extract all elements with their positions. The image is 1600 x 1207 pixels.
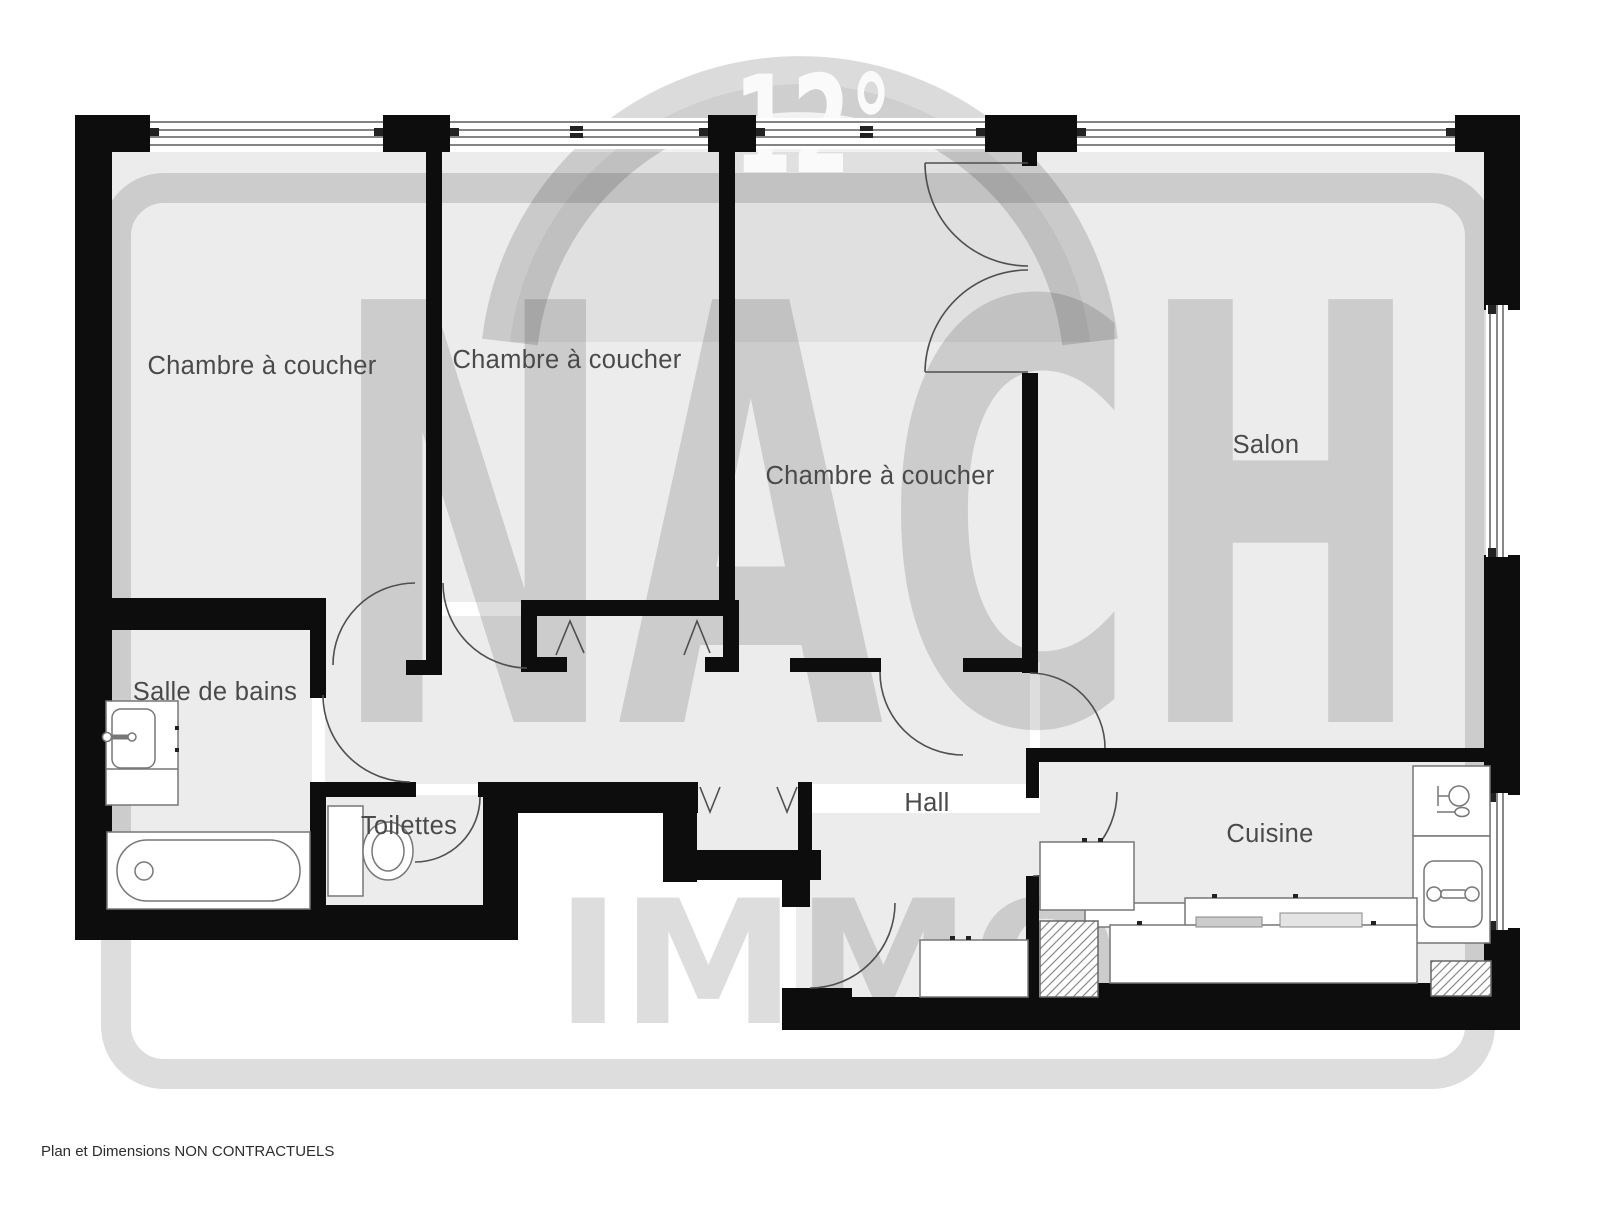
floor-plan: NACH IMMO 12° (0, 0, 1600, 1207)
floor-plan-page: NACH IMMO 12° (0, 0, 1600, 1207)
room-label-salon: Salon (1233, 431, 1300, 459)
window (450, 118, 708, 149)
room-label-bedroom-3: Chambre à coucher (765, 462, 994, 490)
window (1077, 118, 1455, 149)
washbasin-icon (103, 701, 180, 805)
room-label-hall: Hall (904, 789, 949, 817)
dishwasher-icon (1413, 766, 1490, 836)
ventilation-shaft (1431, 961, 1491, 996)
room-label-toilets: Toilettes (361, 812, 457, 840)
window (150, 118, 383, 149)
hall-cabinet (920, 936, 1028, 997)
room-label-bedroom-2: Chambre à coucher (452, 346, 681, 374)
wardrobe-cabinet (1040, 838, 1134, 910)
room-label-bedroom-1: Chambre à coucher (147, 352, 376, 380)
kitchen-sink-icon (1413, 836, 1490, 943)
ventilation-shaft (1040, 921, 1098, 997)
disclaimer-text: Plan et Dimensions NON CONTRACTUELS (41, 1143, 334, 1160)
bathtub-icon (107, 832, 310, 909)
room-label-bathroom: Salle de bains (133, 678, 297, 706)
window (756, 118, 985, 149)
kitchen-counter (1085, 894, 1417, 983)
room-label-kitchen: Cuisine (1226, 820, 1313, 848)
window (1486, 305, 1508, 557)
